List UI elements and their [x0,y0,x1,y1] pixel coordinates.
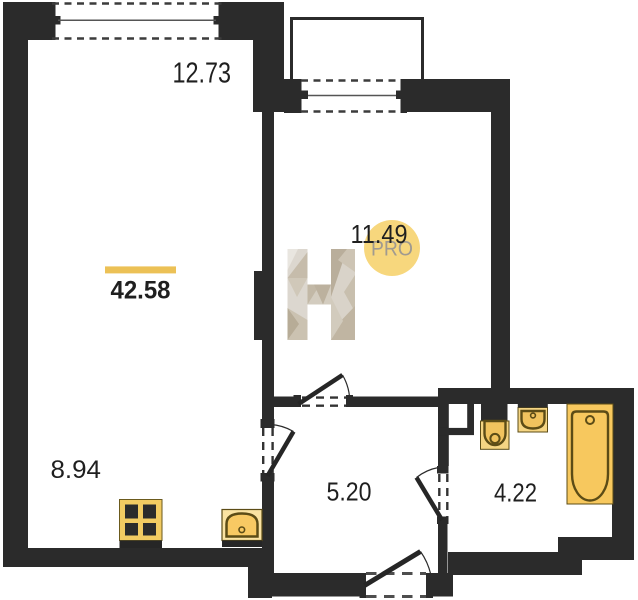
svg-text:5.20: 5.20 [327,477,372,507]
svg-text:8.94: 8.94 [51,456,102,484]
svg-text:11.49: 11.49 [351,219,408,249]
svg-text:4.22: 4.22 [494,480,537,508]
svg-text:12.73: 12.73 [173,58,232,90]
svg-text:42.58: 42.58 [111,277,171,305]
